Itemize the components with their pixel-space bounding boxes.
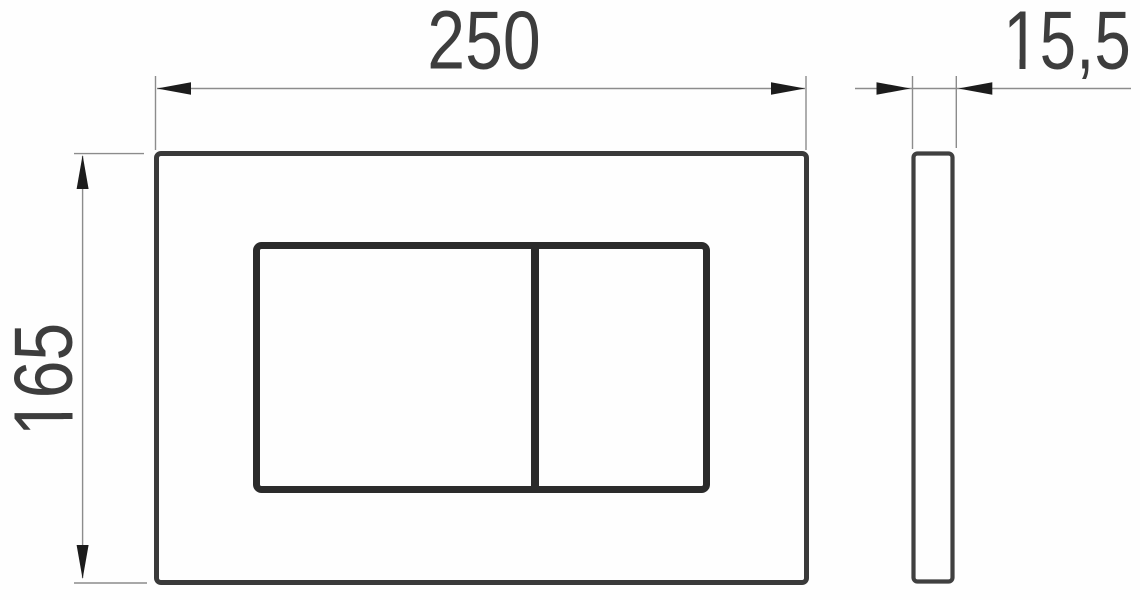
- svg-text:165: 165: [0, 323, 90, 437]
- svg-text:250: 250: [427, 0, 541, 87]
- svg-text:15,5: 15,5: [1003, 0, 1131, 86]
